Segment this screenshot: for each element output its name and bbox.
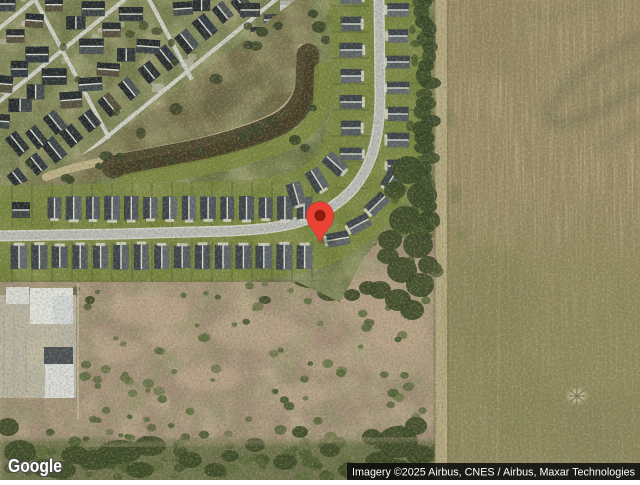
svg-text:Google: Google — [8, 455, 62, 476]
svg-text:Imagery ©2025 Airbus, CNES / A: Imagery ©2025 Airbus, CNES / Airbus, Max… — [352, 467, 635, 479]
